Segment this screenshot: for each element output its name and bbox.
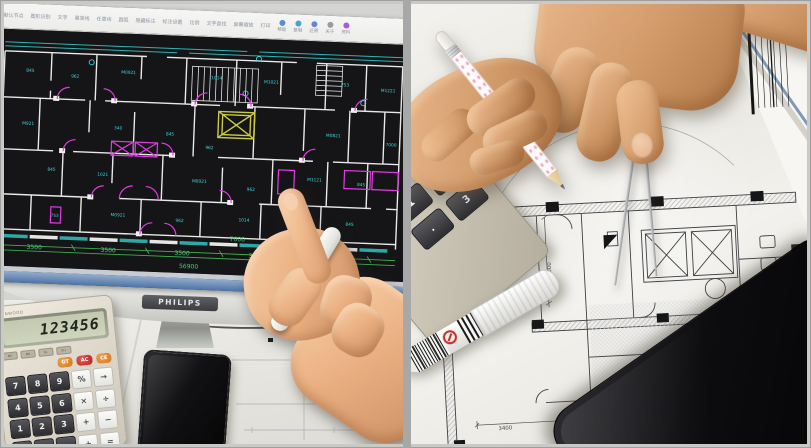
photo-collage: 默认节点图形识别文字基准线任意线圆弧隐藏标注标注设置比例文字查找屏幕缩放打印帮助… (0, 0, 811, 448)
left-photo-cad-monitor: 默认节点图形识别文字基准线任意线圆弧隐藏标注标注设置比例文字查找屏幕缩放打印帮助… (4, 4, 403, 444)
right-photo-blueprint-drafting: 3400900020002310500 00012.3 (411, 4, 807, 444)
photo-divider (403, 0, 411, 448)
pencil-hand (411, 4, 807, 444)
pointing-hand (4, 4, 403, 444)
